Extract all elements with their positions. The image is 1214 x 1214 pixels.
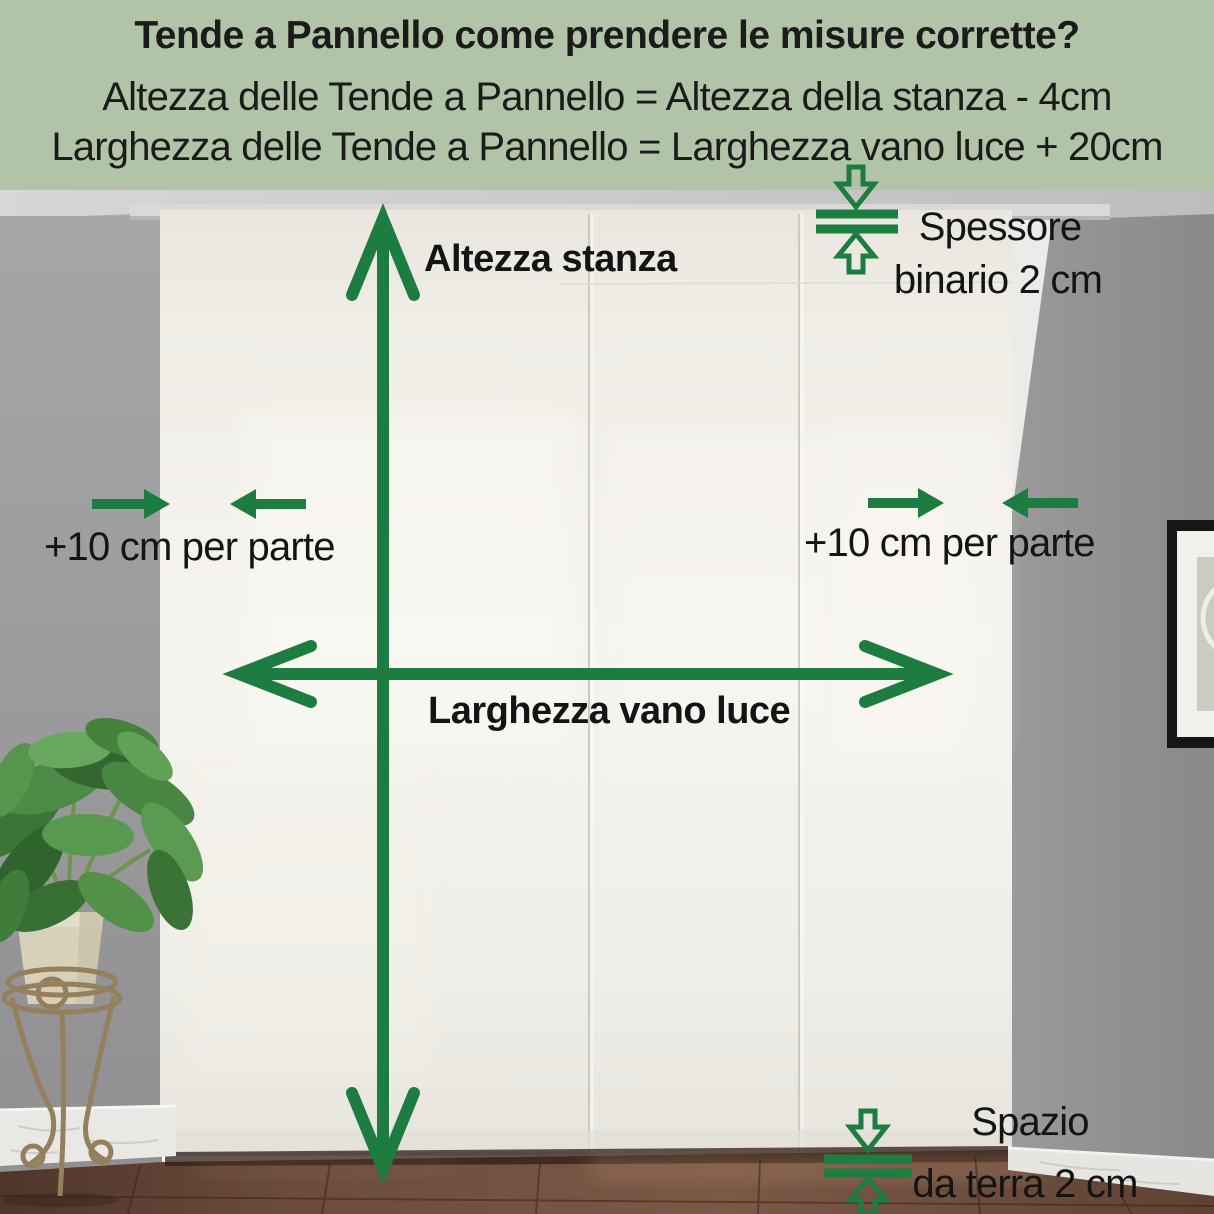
track-thickness-label-line1: Spessore	[880, 205, 1120, 250]
room-height-label: Altezza stanza	[424, 238, 677, 281]
page-title: Tende a Pannello come prendere le misure…	[0, 0, 1214, 58]
infographic-canvas: Tende a Pannello come prendere le misure…	[0, 0, 1214, 1214]
floor-gap-label-line1: Spazio	[910, 1100, 1150, 1145]
left-wall	[0, 216, 162, 1214]
panel-curtains	[160, 210, 1012, 1156]
header-banner: Tende a Pannello come prendere le misure…	[0, 0, 1214, 190]
floor-gap-label-line2: da terra 2 cm	[880, 1162, 1170, 1207]
track-thickness-label-line2: binario 2 cm	[868, 258, 1128, 303]
width-formula-text: Larghezza delle Tende a Pannello = Largh…	[0, 122, 1214, 172]
side-allowance-right-label: +10 cm per parte	[804, 521, 1095, 566]
window-width-label: Larghezza vano luce	[428, 690, 790, 733]
height-formula-text: Altezza delle Tende a Pannello = Altezza…	[0, 72, 1214, 122]
side-allowance-left-label: +10 cm per parte	[44, 525, 335, 570]
picture-frame	[1167, 520, 1214, 748]
